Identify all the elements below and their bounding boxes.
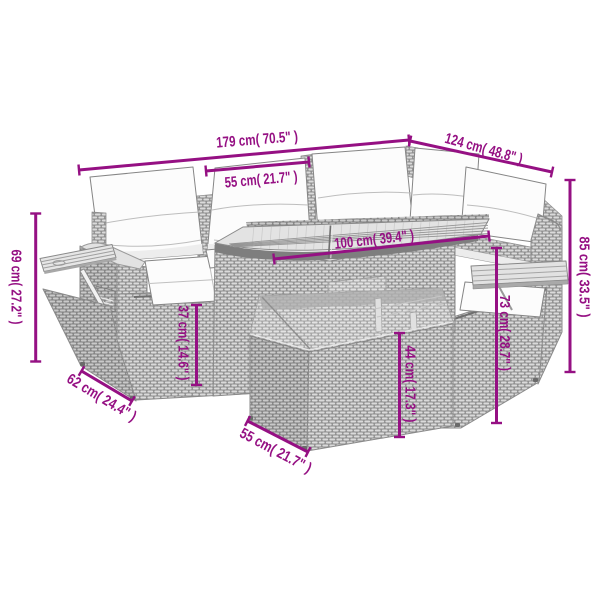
svg-text:69 cm( 27.2" ): 69 cm( 27.2" ) [8,250,25,325]
svg-text:85 cm( 33.5" ): 85 cm( 33.5" ) [576,237,593,318]
svg-text:73 cm( 28.7" ): 73 cm( 28.7" ) [496,295,513,371]
svg-text:44 cm( 17.3" ): 44 cm( 17.3" ) [402,346,419,423]
svg-text:37 cm( 14.6" ): 37 cm( 14.6" ) [175,306,192,381]
